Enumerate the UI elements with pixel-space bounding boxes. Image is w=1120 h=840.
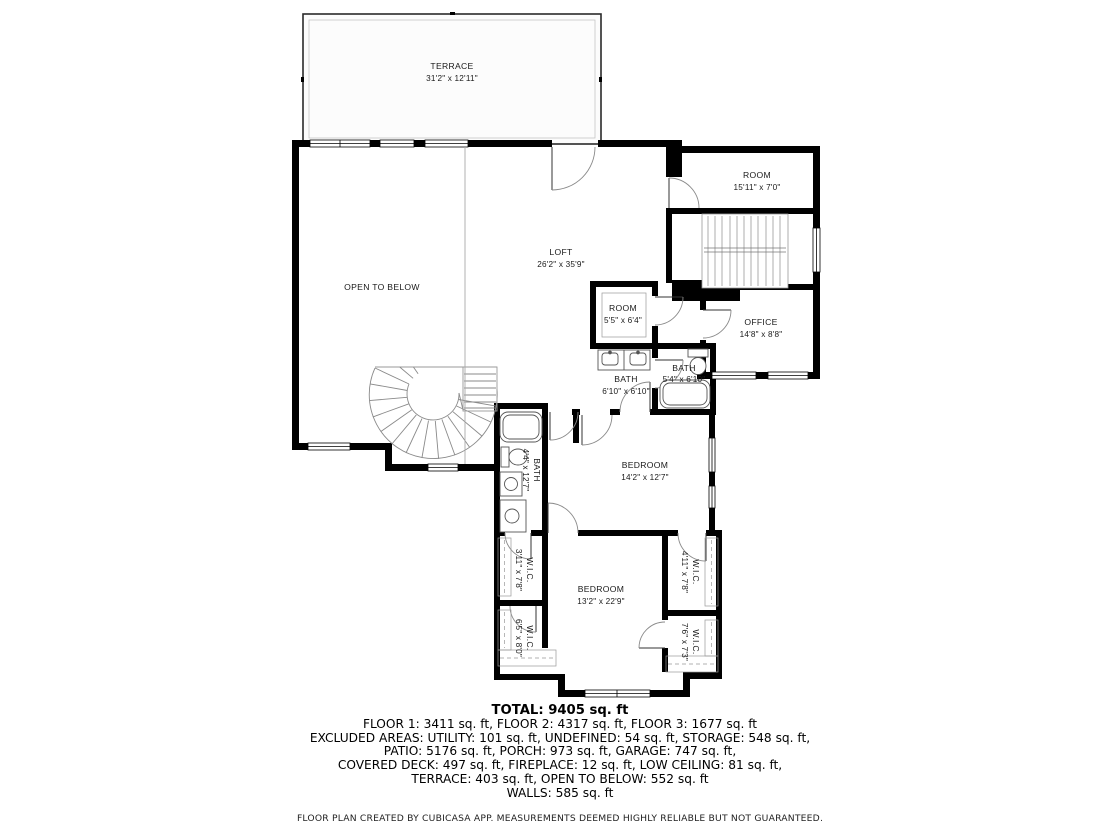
svg-text:6'5" x 8'0": 6'5" x 8'0" <box>514 619 523 657</box>
room-dims-terrace: 31'2" x 12'11" <box>426 74 478 83</box>
svg-text:BATH: BATH <box>532 458 542 481</box>
room-label-open-to-below: OPEN TO BELOW <box>344 282 420 292</box>
room-label-loft: LOFT <box>549 247 573 257</box>
summary-excluded-3: COVERED DECK: 497 sq. ft, FIREPLACE: 12 … <box>0 759 1120 773</box>
svg-text:3'11" x 7'8": 3'11" x 7'8" <box>514 549 523 591</box>
summary-excluded-4: TERRACE: 403 sq. ft, OPEN TO BELOW: 552 … <box>0 773 1120 787</box>
room-dims-bedroom-lower: 13'2" x 22'9" <box>577 597 625 606</box>
room-dims-office: 14'8" x 8'8" <box>740 330 783 339</box>
room-dims-loft: 26'2" x 35'9" <box>537 260 585 269</box>
summary-floors: FLOOR 1: 3411 sq. ft, FLOOR 2: 4317 sq. … <box>0 718 1120 732</box>
room-label-room-small: ROOM <box>609 303 637 313</box>
room-label-wic-left-bottom: W.I.C. 6'5" x 8'0" <box>514 619 535 657</box>
svg-text:4'4" x 12'7": 4'4" x 12'7" <box>521 449 530 492</box>
room-label-bedroom-lower: BEDROOM <box>578 584 625 594</box>
room-dims-bath-right: 5'4" x 6'10" <box>663 375 706 384</box>
room-label-terrace: TERRACE <box>430 61 473 71</box>
room-label-office: OFFICE <box>744 317 777 327</box>
svg-text:W.I.C.: W.I.C. <box>691 559 701 584</box>
room-dims-bedroom-upper: 14'2" x 12'7" <box>621 473 669 482</box>
room-label-bath-left: BATH <box>614 374 637 384</box>
area-summary: TOTAL: 9405 sq. ft FLOOR 1: 3411 sq. ft,… <box>0 704 1120 801</box>
room-label-wic-right-bottom: W.I.C. 7'6" x 7'3" <box>680 623 701 661</box>
svg-text:W.I.C.: W.I.C. <box>691 629 701 654</box>
room-label-bath-vertical: BATH 4'4" x 12'7" <box>521 449 542 492</box>
summary-excluded-2: PATIO: 5176 sq. ft, PORCH: 973 sq. ft, G… <box>0 745 1120 759</box>
room-label-bedroom-upper: BEDROOM <box>622 460 669 470</box>
room-label-bath-right: BATH <box>672 363 695 373</box>
summary-excluded-1: EXCLUDED AREAS: UTILITY: 101 sq. ft, UND… <box>0 732 1120 746</box>
footer-disclaimer: FLOOR PLAN CREATED BY CUBICASA APP. MEAS… <box>0 813 1120 824</box>
room-label-wic-left-top: W.I.C. 3'11" x 7'8" <box>514 549 535 591</box>
staircase-straight <box>702 214 788 288</box>
room-label-wic-right-top: W.I.C. 4'11" x 7'8" <box>680 551 701 593</box>
summary-total: TOTAL: 9405 sq. ft <box>0 704 1120 718</box>
room-dims-room-small: 5'5" x 6'4" <box>604 316 642 325</box>
svg-text:W.I.C.: W.I.C. <box>525 625 535 650</box>
svg-text:W.I.C.: W.I.C. <box>525 557 535 582</box>
svg-text:7'6" x 7'3": 7'6" x 7'3" <box>680 623 689 661</box>
room-dims-room-top: 15'11" x 7'0" <box>734 183 781 192</box>
summary-walls: WALLS: 585 sq. ft <box>0 787 1120 801</box>
svg-text:4'11" x 7'8": 4'11" x 7'8" <box>680 551 689 593</box>
room-dims-bath-left: 6'10" x 6'10" <box>602 387 650 396</box>
room-label-room-top: ROOM <box>743 170 771 180</box>
